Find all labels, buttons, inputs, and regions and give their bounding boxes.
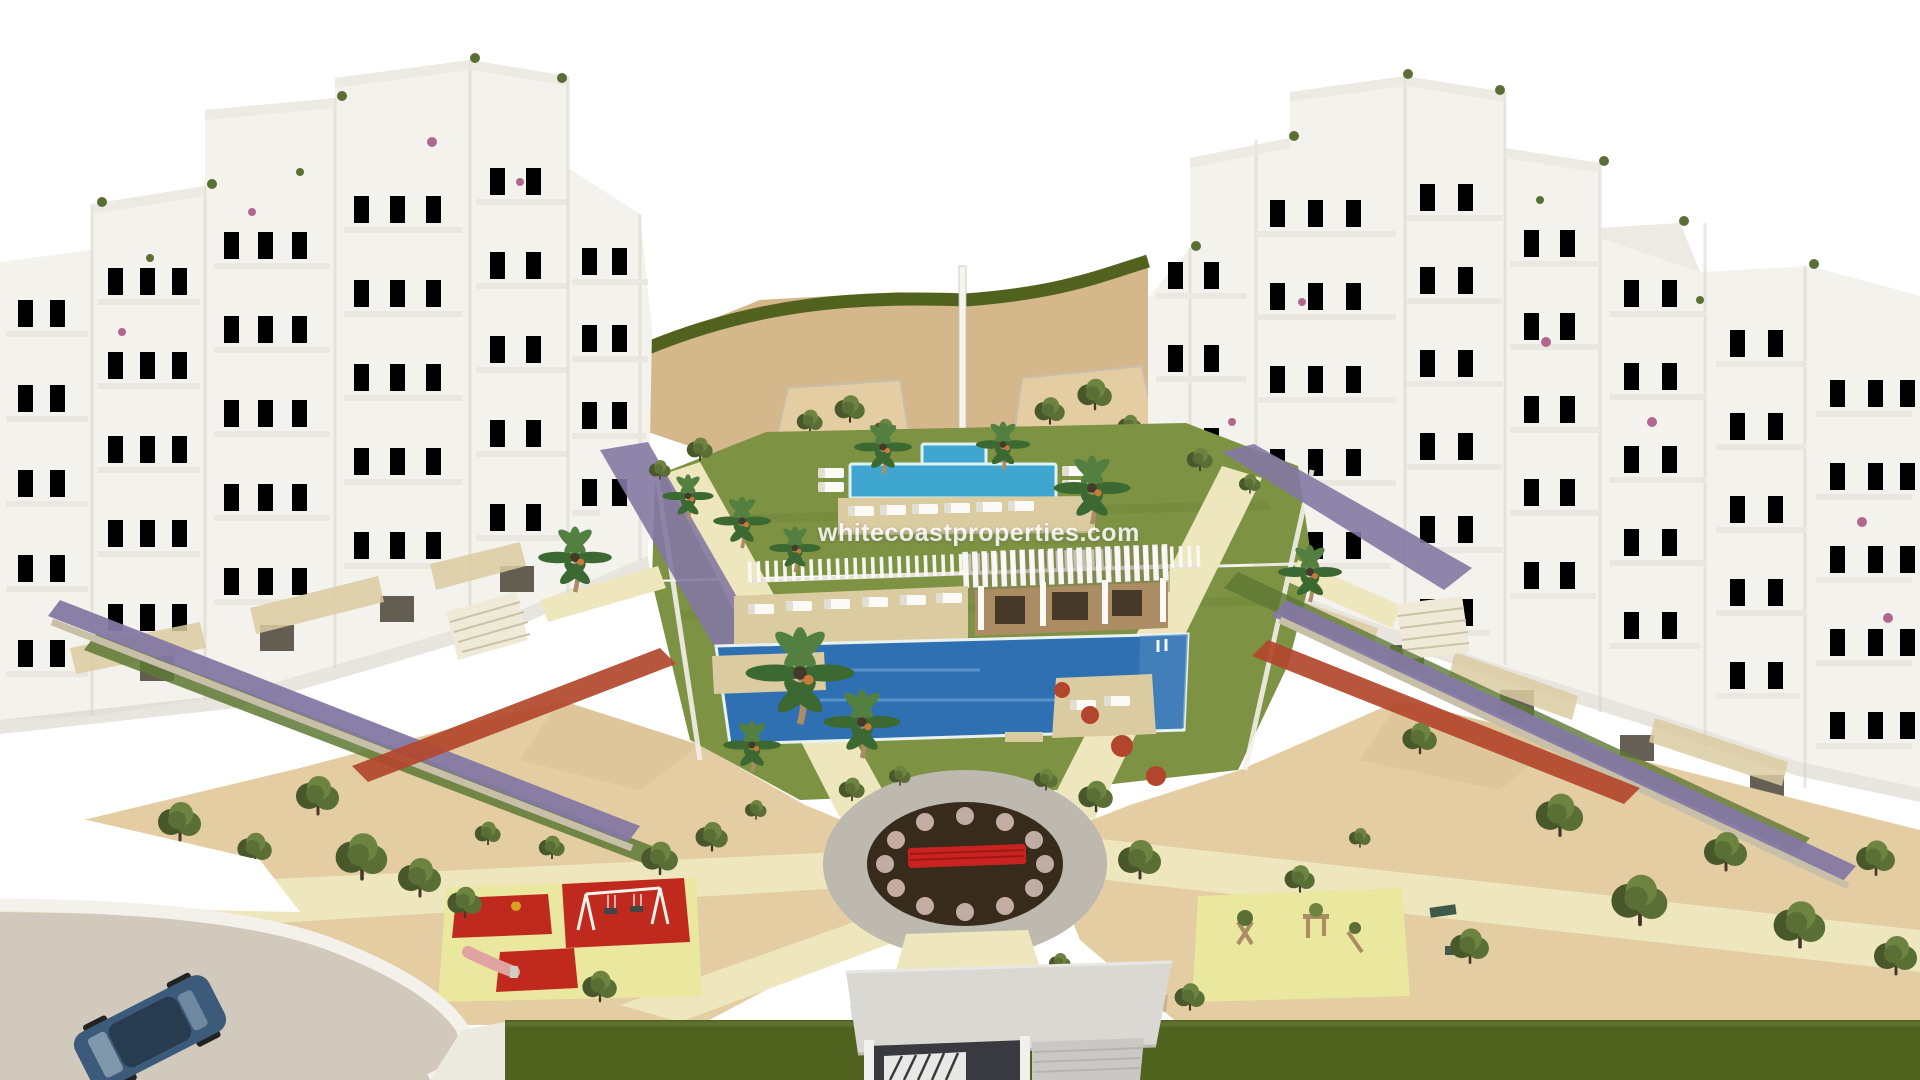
spring-rider [511,901,521,911]
watermark-text: whitecoastproperties.com [818,519,1118,548]
gate-walkway [896,930,1040,970]
perimeter-hedge [505,1020,1920,1080]
stairs-right [1396,596,1470,660]
pool-deck-right [1052,674,1156,738]
plaza [823,770,1107,958]
flag-pole [959,266,966,434]
main-pool [712,634,1188,744]
red-bench [908,844,1027,868]
render-image: whitecoastproperties.com [0,0,1920,1080]
pergola [963,544,1170,636]
